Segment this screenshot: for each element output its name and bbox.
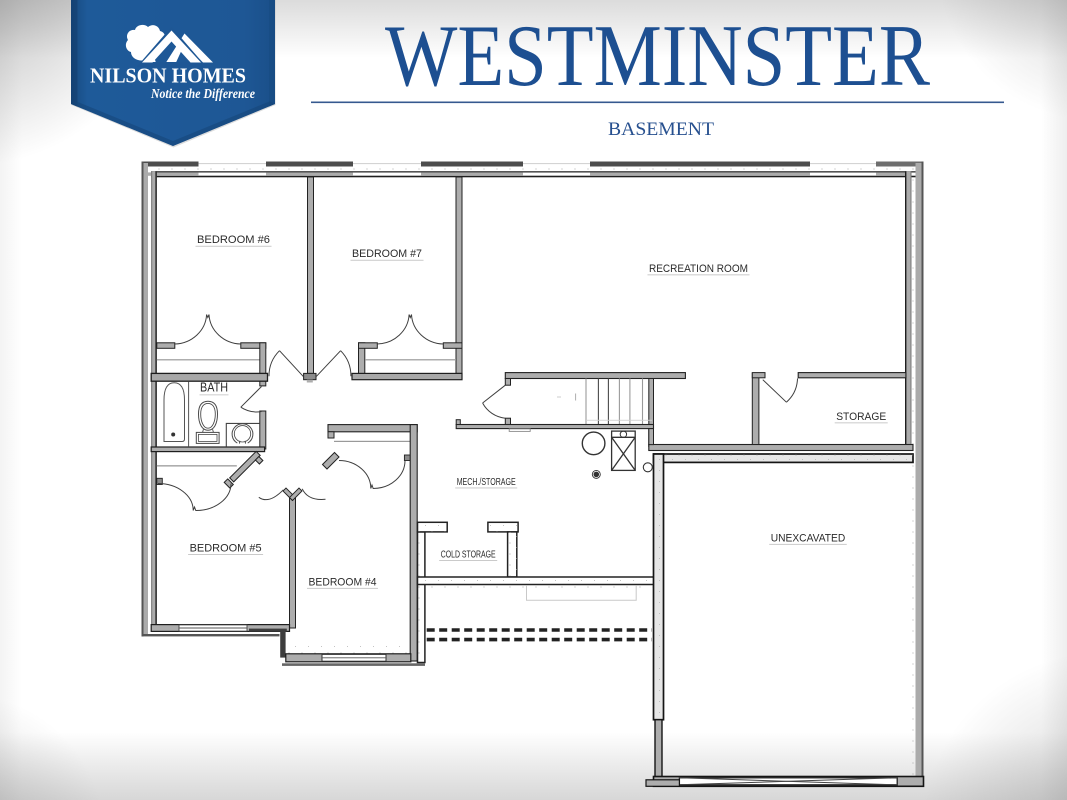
svg-text:BEDROOM #6: BEDROOM #6: [197, 234, 270, 246]
svg-text:STORAGE: STORAGE: [836, 411, 886, 423]
svg-text:BATH: BATH: [200, 380, 228, 394]
svg-text:BEDROOM #7: BEDROOM #7: [352, 248, 422, 260]
svg-text:BEDROOM #5: BEDROOM #5: [190, 542, 262, 554]
svg-text:Notice the Difference: Notice the Difference: [150, 86, 255, 101]
svg-text:NILSON HOMES: NILSON HOMES: [90, 64, 246, 88]
svg-text:COLD STORAGE: COLD STORAGE: [441, 550, 496, 561]
svg-text:BEDROOM #4: BEDROOM #4: [309, 576, 377, 588]
svg-text:BASEMENT: BASEMENT: [608, 119, 714, 140]
svg-text:WESTMINSTER: WESTMINSTER: [385, 8, 930, 105]
svg-text:RECREATION ROOM: RECREATION ROOM: [649, 263, 748, 275]
svg-text:MECH./STORAGE: MECH./STORAGE: [457, 477, 516, 488]
svg-text:UNEXCAVATED: UNEXCAVATED: [771, 532, 846, 544]
